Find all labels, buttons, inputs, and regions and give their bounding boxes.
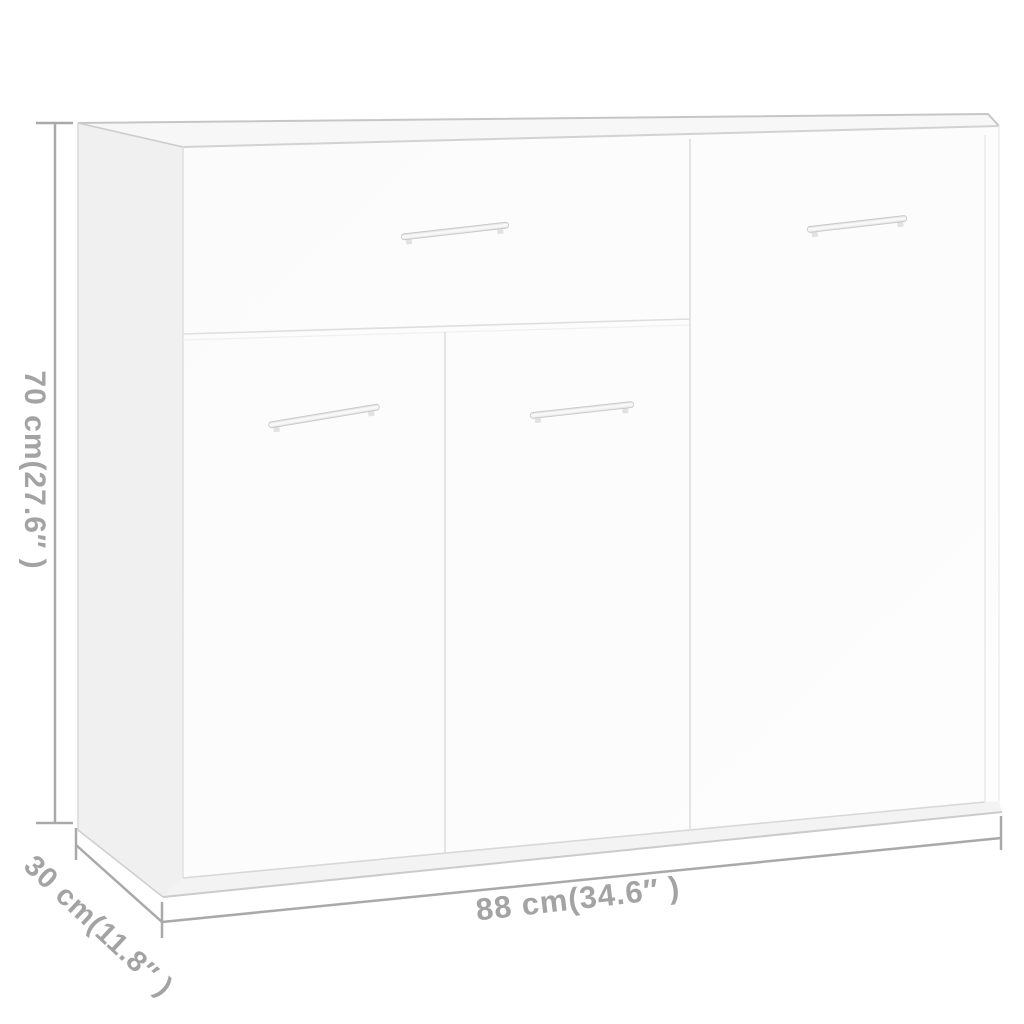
sideboard-illustration xyxy=(0,0,1024,1024)
cabinet-body xyxy=(78,114,1002,897)
product-dimension-diagram: 70 cm(27.6″ ) 30 cm(11.8″ ) 88 cm(34.6″ … xyxy=(0,0,1024,1024)
cabinet-front-face xyxy=(183,126,999,878)
height-dimension-label: 70 cm(27.6″ ) xyxy=(17,370,51,569)
cabinet-side-panel xyxy=(78,123,183,897)
